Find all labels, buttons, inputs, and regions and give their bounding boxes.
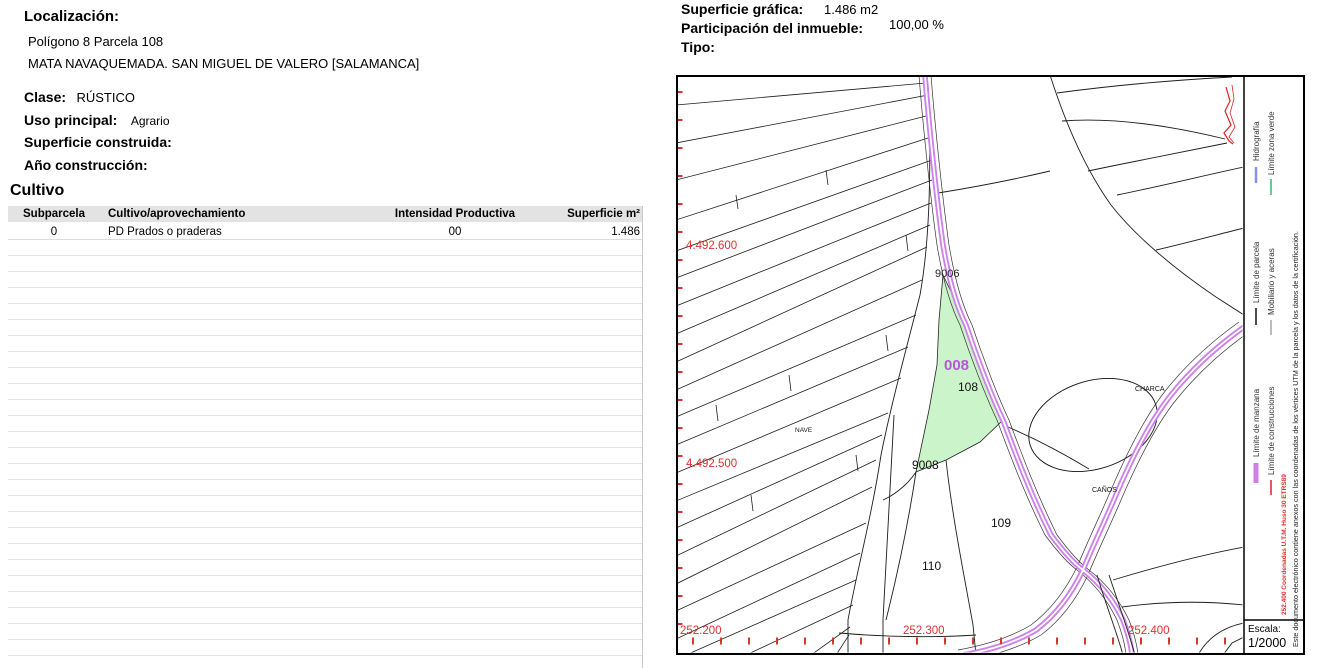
scale-label: Escala: (1248, 624, 1281, 635)
map-label-9006: 9006 (935, 268, 959, 280)
table-empty-row (8, 512, 642, 528)
scale-value: 1/2000 (1248, 636, 1286, 650)
col-header-cultivo: Cultivo/aprovechamiento (100, 206, 368, 223)
legend-mobiliario: Mobiliario y aceras (1267, 248, 1276, 315)
table-empty-row (8, 304, 642, 320)
utm-coord-x3: 252.400 (1128, 625, 1170, 637)
table-empty-row (8, 544, 642, 560)
tipo-label: Tipo: (681, 39, 715, 55)
localizacion-line2: MATA NAVAQUEMADA. SAN MIGUEL DE VALERO [… (28, 56, 419, 71)
utm-coord-y1: 4.492.600 (686, 240, 737, 252)
table-empty-row (8, 624, 642, 640)
table-empty-row (8, 576, 642, 592)
parcel-boundary-corridor (848, 83, 930, 655)
legend-limite-zona-verde: Límite zona verde (1267, 111, 1276, 175)
table-row: 0PD Prados o praderas001.486 (8, 223, 642, 240)
charca-pond (1017, 363, 1170, 487)
table-empty-row (8, 656, 642, 668)
table-empty-row (8, 432, 642, 448)
table-empty-row (8, 352, 642, 368)
cultivo-heading: Cultivo (10, 182, 64, 200)
table-empty-row (8, 320, 642, 336)
table-empty-row (8, 256, 642, 272)
parcels-top-right (938, 75, 1244, 315)
uso-value: Agrario (131, 114, 170, 128)
map-label-108: 108 (958, 380, 978, 394)
construction-outline-2 (1229, 85, 1235, 143)
col-header-intensidad: Intensidad Productiva (368, 206, 542, 223)
map-label-109: 109 (991, 516, 1011, 530)
legend: Hidrografía Límite de parcela Límite de … (1252, 111, 1300, 647)
map-label-nave: NAVE (795, 427, 813, 434)
table-empty-row (8, 336, 642, 352)
cultivo-table-head: Subparcela Cultivo/aprovechamiento Inten… (8, 206, 642, 223)
superficie-grafica-value: 1.486 m2 (824, 2, 878, 17)
legend-limite-parcela: Límite de parcela (1252, 241, 1261, 303)
table-empty-row (8, 592, 642, 608)
table-empty-row (8, 384, 642, 400)
legend-disclaimer: Este documento electrónico contiene anex… (1291, 231, 1300, 647)
map-label-110: 110 (922, 559, 941, 573)
map-label-canos: CAÑOS (1092, 485, 1117, 494)
table-empty-row (8, 448, 642, 464)
utm-coord-y2: 4.492.500 (686, 458, 737, 470)
table-empty-row (8, 400, 642, 416)
col-header-superficie: Superficie m² (542, 206, 642, 223)
map-label-charca: CHARCA (1135, 386, 1165, 393)
participacion-value: 100,00 % (889, 17, 944, 32)
table-empty-row (8, 368, 642, 384)
parcels-bottom-right (1097, 547, 1244, 655)
utm-coord-x2: 252.300 (903, 625, 945, 637)
table-empty-row (8, 560, 642, 576)
uso-label: Uso principal: (24, 112, 117, 128)
table-empty-row (8, 528, 642, 544)
cultivo-table: Subparcela Cultivo/aprovechamiento Inten… (8, 206, 642, 668)
table-empty-row (8, 272, 642, 288)
utm-coord-x1: 252.200 (680, 625, 722, 637)
table-empty-row (8, 496, 642, 512)
superficie-grafica-label: Superficie gráfica: (681, 1, 803, 17)
legend-coordenadas: 252.400 Coordenadas U.T.M. Huso 30 ETRS8… (1281, 474, 1288, 615)
localizacion-heading: Localización: (24, 8, 119, 25)
map-label-9008: 9008 (912, 458, 939, 472)
cultivo-table-wrap: Subparcela Cultivo/aprovechamiento Inten… (8, 206, 643, 668)
catastro-page: Localización: Polígono 8 Parcela 108 MAT… (0, 0, 1324, 668)
clase-label: Clase: (24, 89, 66, 105)
participacion-label: Participación del inmueble: (681, 20, 863, 36)
cadastral-map: 9006 008 108 9008 NAVE CHARCA CAÑOS 109 … (676, 75, 1305, 655)
legend-limite-manzana: Límite de manzana (1252, 388, 1261, 457)
table-empty-row (8, 464, 642, 480)
col-header-subparcela: Subparcela (8, 206, 100, 223)
table-empty-row (8, 608, 642, 624)
map-label-008: 008 (944, 357, 969, 374)
superficie-construida-label: Superficie construida: (24, 134, 172, 150)
ano-construccion-label: Año construcción: (24, 157, 148, 173)
construction-outline (1224, 87, 1233, 144)
strip-parcels (676, 83, 932, 655)
localizacion-line1: Polígono 8 Parcela 108 (28, 34, 163, 49)
table-empty-row (8, 240, 642, 256)
legend-limite-construcciones: Límite de construcciones (1267, 387, 1276, 476)
cultivo-table-body: 0PD Prados o praderas001.486 (8, 223, 642, 668)
table-empty-row (8, 640, 642, 656)
table-empty-row (8, 480, 642, 496)
clase-value: RÚSTICO (76, 90, 135, 105)
table-empty-row (8, 288, 642, 304)
legend-hidrografia: Hidrografía (1252, 121, 1261, 161)
table-empty-row (8, 416, 642, 432)
uso-row: Uso principal: Agrario (24, 112, 170, 130)
clase-row: Clase: RÚSTICO (24, 89, 135, 107)
